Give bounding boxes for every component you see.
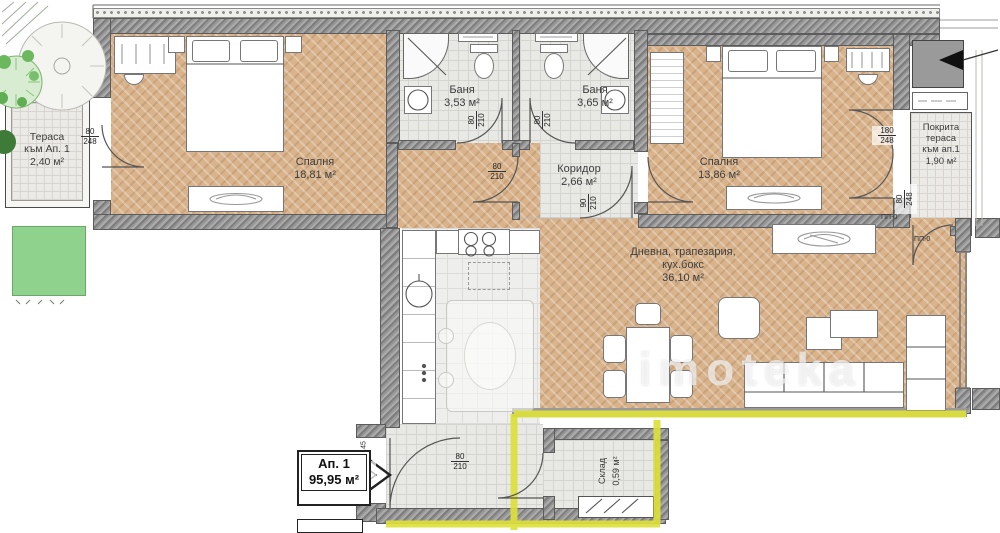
wall-bedroom1-bath1 — [386, 30, 400, 143]
pillow — [776, 50, 816, 72]
wall-storage-left-b — [543, 496, 555, 520]
dim-bedroom2-terrace-door: 180 248 — [872, 126, 902, 145]
wall-bedroom2-left-lower — [634, 202, 648, 214]
wall-storage-right — [655, 440, 669, 520]
bench — [726, 186, 822, 210]
grass-patch — [12, 226, 86, 296]
wall-corridor-left-a — [512, 143, 520, 157]
toilet-bowl-icon — [474, 53, 494, 79]
dim-terrace-left-door: 80 248 — [76, 127, 104, 146]
wall-kitchen-outer — [380, 228, 400, 428]
wall-bath1-bottom-a — [398, 140, 456, 150]
wall-far-right-top — [975, 218, 1000, 238]
room-label-bath1: Баня 3,53 м² — [418, 84, 506, 110]
room-label-terrace-left: Тераса към Ап. 1 2,40 м² — [10, 131, 84, 168]
dining-chair — [635, 303, 661, 325]
wall-bedroom2-right-upper — [893, 34, 910, 110]
wall-insulation-top — [93, 8, 940, 18]
apartment-badge: Ап. 1 95,95 м² — [297, 450, 371, 506]
wall-bath2-bottom-c — [575, 140, 634, 150]
kitchen-counter-left — [402, 230, 436, 424]
room-name: Тераса — [10, 131, 84, 143]
room-label-storage-name: Склад — [597, 441, 607, 501]
room-name: Баня — [551, 84, 639, 97]
room-label-bath2: Баня 3,65 м² — [551, 84, 639, 110]
apartment-area: 95,95 м² — [306, 472, 362, 488]
wall-left-upper — [93, 18, 111, 98]
wall-living-right-top — [955, 218, 971, 252]
room-label-bedroom1: Спалня 18,81 м² — [268, 156, 362, 182]
room-area: 2,40 м² — [10, 156, 84, 168]
room-name: към ап.1 — [909, 144, 973, 155]
dim-storage-door: 80 210 — [446, 452, 474, 471]
towel-rail-icon — [535, 33, 578, 42]
room-name: Спалня — [268, 156, 362, 169]
wall-bedroom1-bottom — [93, 214, 388, 230]
coffee-table — [830, 310, 878, 338]
pillow — [192, 40, 230, 62]
island-chair — [438, 372, 454, 388]
wall-cabinet-dashed — [468, 262, 510, 290]
shaft — [912, 40, 964, 88]
wall-living-bottom — [512, 408, 967, 417]
nightstand — [706, 46, 721, 62]
room-label-living: Дневна, трапезария, кух.бокс 36,10 м² — [598, 246, 768, 285]
room-area: 13,86 м² — [672, 169, 766, 182]
room-name: Покрита — [909, 122, 973, 133]
towel-rail-icon — [458, 33, 498, 42]
dim-living-corridor-door: 90 210 — [579, 188, 601, 218]
mark-pp0: ПП-0 — [881, 214, 897, 221]
toilet-icon — [470, 44, 498, 53]
dim-corridor-door: 80 210 — [484, 162, 510, 181]
ac-unit-box — [912, 92, 968, 110]
room-name: тераса — [909, 133, 973, 144]
sideboard — [772, 224, 876, 254]
nightstand — [285, 36, 302, 53]
wall-bath-divider — [512, 30, 520, 143]
wall-far-right-bottom — [972, 388, 1000, 410]
apartment-number: Ап. 1 — [306, 456, 362, 472]
room-name: Дневна, трапезария, — [598, 246, 768, 259]
wall-bedroom1-living — [386, 143, 398, 228]
room-name: кух.бокс — [598, 259, 768, 272]
dresser — [188, 186, 284, 212]
wall-storage-left-a — [543, 428, 555, 453]
mark-pp0: ПП-0 — [914, 236, 930, 243]
nightstand — [824, 46, 839, 62]
armchair — [718, 297, 760, 339]
wardrobe — [114, 36, 176, 74]
watermark: imoteka — [540, 342, 960, 396]
room-label-bedroom2: Спалня 13,86 м² — [672, 156, 766, 182]
room-name: Спалня — [672, 156, 766, 169]
island-chair — [438, 328, 454, 344]
room-area: 36,10 м² — [598, 272, 768, 285]
room-label-terrace-right: Покрита тераса към ап.1 1,90 м² — [909, 122, 973, 167]
dim-bath2-door: 80 210 — [533, 105, 555, 135]
pillow — [240, 40, 278, 62]
room-label-storage-area: 0,59 м² — [611, 441, 621, 501]
room-name: Баня — [418, 84, 506, 97]
toilet-icon — [540, 44, 568, 53]
pillow — [728, 50, 768, 72]
dim-terrace-right-door: 80 248 — [895, 184, 917, 214]
dresser — [846, 48, 890, 72]
floor-plan: Тераса към Ап. 1 2,40 м² Спалня 18,81 м²… — [0, 0, 1000, 533]
stove-icon — [458, 229, 510, 255]
room-area: 1,90 м² — [909, 156, 973, 167]
room-label-corridor: Коридор 2,66 м² — [534, 163, 624, 189]
dim-bath1-door: 80 210 — [467, 105, 489, 135]
wall-storage-top — [543, 428, 669, 440]
toilet-bowl-icon — [544, 53, 564, 79]
room-name: към Ап. 1 — [10, 143, 84, 155]
room-name: Коридор — [534, 163, 624, 176]
room-area: 3,65 м² — [551, 97, 639, 110]
room-area: 18,81 м² — [268, 169, 362, 182]
wardrobe — [650, 52, 684, 144]
nightstand — [168, 36, 185, 53]
kitchen-island-top — [464, 322, 516, 390]
room-area: 3,53 м² — [418, 97, 506, 110]
wall-corridor-left-b — [512, 202, 520, 220]
partial-label-box — [297, 519, 363, 533]
room-area: 2,66 м² — [534, 176, 624, 189]
